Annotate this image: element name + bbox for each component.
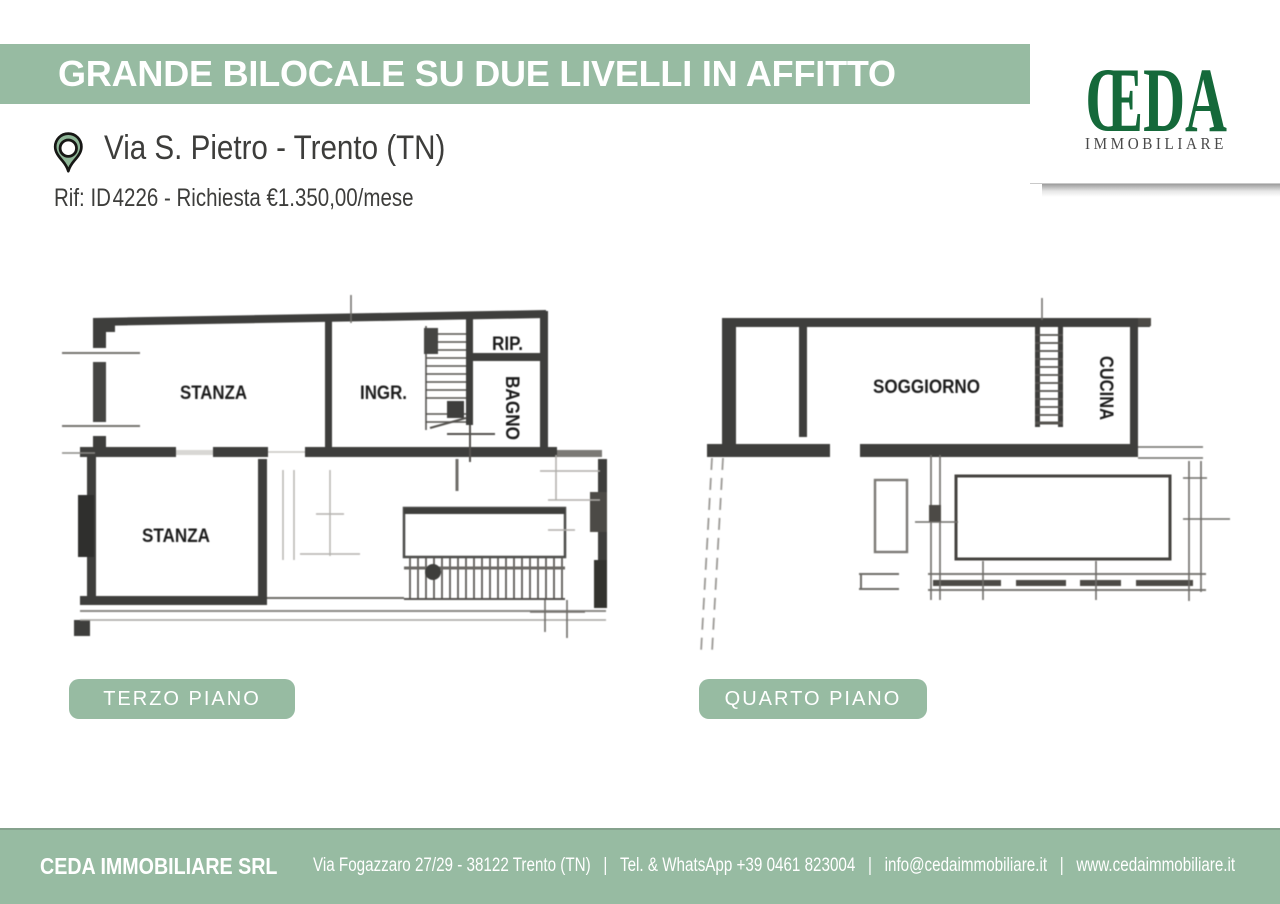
svg-text:CUCINA: CUCINA	[1095, 356, 1116, 420]
svg-text:SOGGIORNO: SOGGIORNO	[873, 377, 980, 398]
